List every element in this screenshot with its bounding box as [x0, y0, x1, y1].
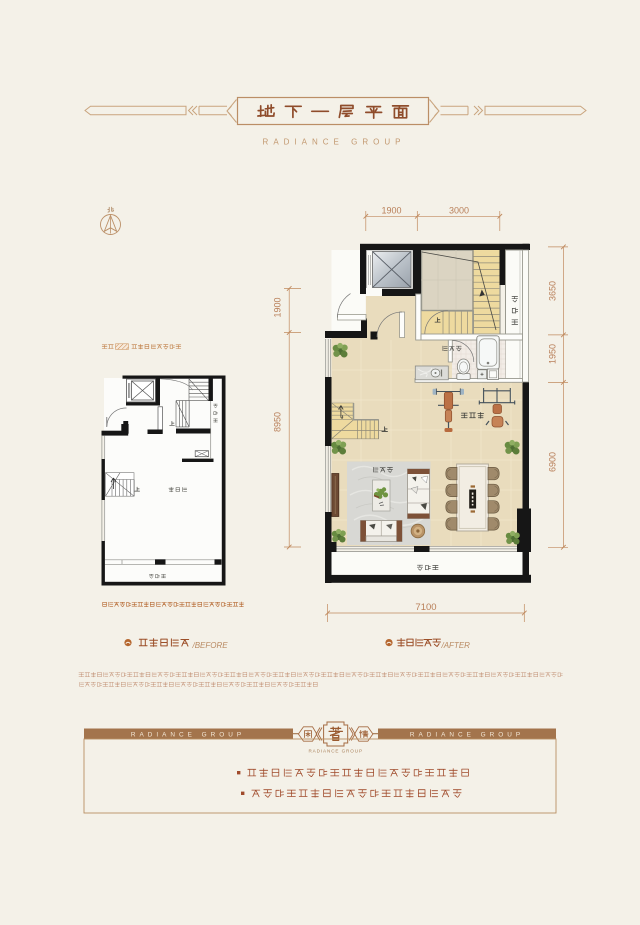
svg-text:6900: 6900 — [548, 452, 558, 472]
svg-text:RADIANCE GROUP: RADIANCE GROUP — [308, 749, 362, 754]
svg-text:8950: 8950 — [273, 412, 283, 432]
svg-text:1950: 1950 — [548, 344, 558, 364]
svg-text:RADIANCE GROUP: RADIANCE GROUP — [410, 732, 524, 739]
svg-text:/AFTER: /AFTER — [441, 641, 471, 650]
svg-text:3000: 3000 — [449, 206, 469, 216]
svg-text:/BEFORE: /BEFORE — [192, 641, 229, 650]
svg-text:1900: 1900 — [273, 297, 283, 317]
svg-text:3650: 3650 — [548, 281, 558, 301]
svg-text:1900: 1900 — [381, 206, 401, 216]
svg-text:RADIANCE GROUP: RADIANCE GROUP — [131, 732, 245, 739]
svg-text:RADIANCE GROUP: RADIANCE GROUP — [263, 138, 406, 147]
svg-text:7100: 7100 — [415, 602, 436, 613]
